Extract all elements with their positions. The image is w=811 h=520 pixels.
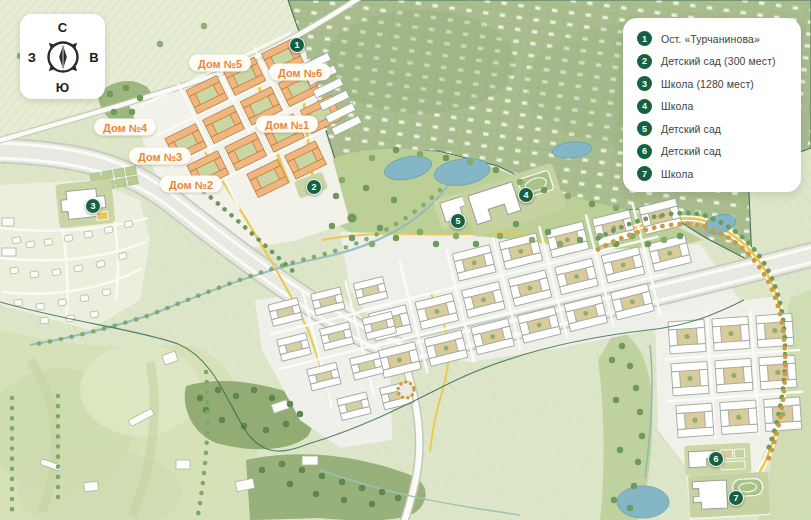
map-marker-7[interactable]: 7 (728, 490, 744, 506)
legend-item-6: 6 Детский сад (637, 144, 787, 159)
house-label-dom3[interactable]: Дом №3 (129, 148, 191, 165)
legend-item-label: Детский сад (300 мест) (661, 55, 776, 67)
house-label-dom6[interactable]: Дом №6 (269, 64, 331, 81)
map-marker-3[interactable]: 3 (85, 198, 101, 214)
compass-east-label: В (89, 50, 98, 65)
house-label-dom5[interactable]: Дом №5 (189, 55, 251, 72)
legend-card: 1 Ост. «Турчанинова» 2 Детский сад (300 … (623, 18, 801, 192)
legend-item-2: 2 Детский сад (300 мест) (637, 54, 787, 69)
legend-item-number: 1 (637, 31, 652, 46)
legend-item-label: Школа (1280 мест) (661, 78, 754, 90)
legend-item-number: 6 (637, 144, 652, 159)
house-label-dom1[interactable]: Дом №1 (256, 116, 318, 133)
legend-item-label: Детский сад (661, 123, 721, 135)
legend-item-number: 7 (637, 166, 652, 181)
legend-item-5: 5 Детский сад (637, 121, 787, 136)
compass-north-label: С (58, 19, 67, 34)
house-label-dom2[interactable]: Дом №2 (160, 176, 222, 193)
map-marker-6[interactable]: 6 (708, 451, 724, 467)
legend-item-1: 1 Ост. «Турчанинова» (637, 31, 787, 46)
legend-item-number: 5 (637, 121, 652, 136)
compass-west-label: З (28, 50, 36, 65)
legend-item-number: 2 (637, 54, 652, 69)
legend-item-label: Школа (661, 168, 693, 180)
legend-item-7: 7 Школа (637, 166, 787, 181)
legend-item-label: Школа (661, 100, 693, 112)
house-label-dom4[interactable]: Дом №4 (94, 119, 156, 136)
compass-card: С Ю З В (20, 14, 105, 99)
legend-item-label: Ост. «Турчанинова» (661, 33, 760, 45)
map-marker-2[interactable]: 2 (306, 179, 322, 195)
legend-item-number: 4 (637, 99, 652, 114)
legend-item-label: Детский сад (661, 145, 721, 157)
masterplan-screenshot: С Ю З В Дом №5 Дом №6 Дом №4 Дом №1 Дом … (0, 0, 811, 520)
legend-item-4: 4 Школа (637, 99, 787, 114)
map-marker-5[interactable]: 5 (450, 213, 466, 229)
legend-item-3: 3 Школа (1280 мест) (637, 76, 787, 91)
map-marker-4[interactable]: 4 (518, 187, 534, 203)
legend-item-number: 3 (637, 76, 652, 91)
map-marker-1[interactable]: 1 (289, 37, 305, 53)
compass-rose-icon (42, 36, 84, 78)
compass-south-label: Ю (56, 80, 69, 95)
